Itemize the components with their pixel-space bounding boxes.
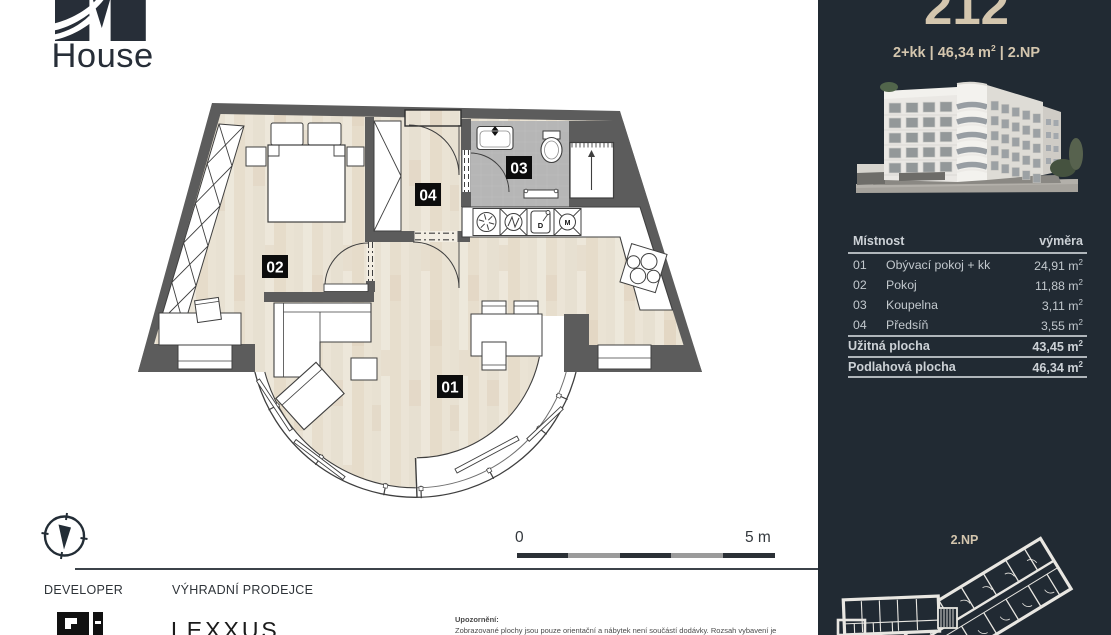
svg-text:02: 02 — [266, 260, 283, 277]
svg-text:M: M — [565, 220, 571, 227]
svg-text:D: D — [538, 221, 544, 230]
svg-text:03: 03 — [510, 161, 528, 178]
svg-text:04: 04 — [419, 188, 437, 205]
svg-text:01: 01 — [441, 380, 459, 397]
